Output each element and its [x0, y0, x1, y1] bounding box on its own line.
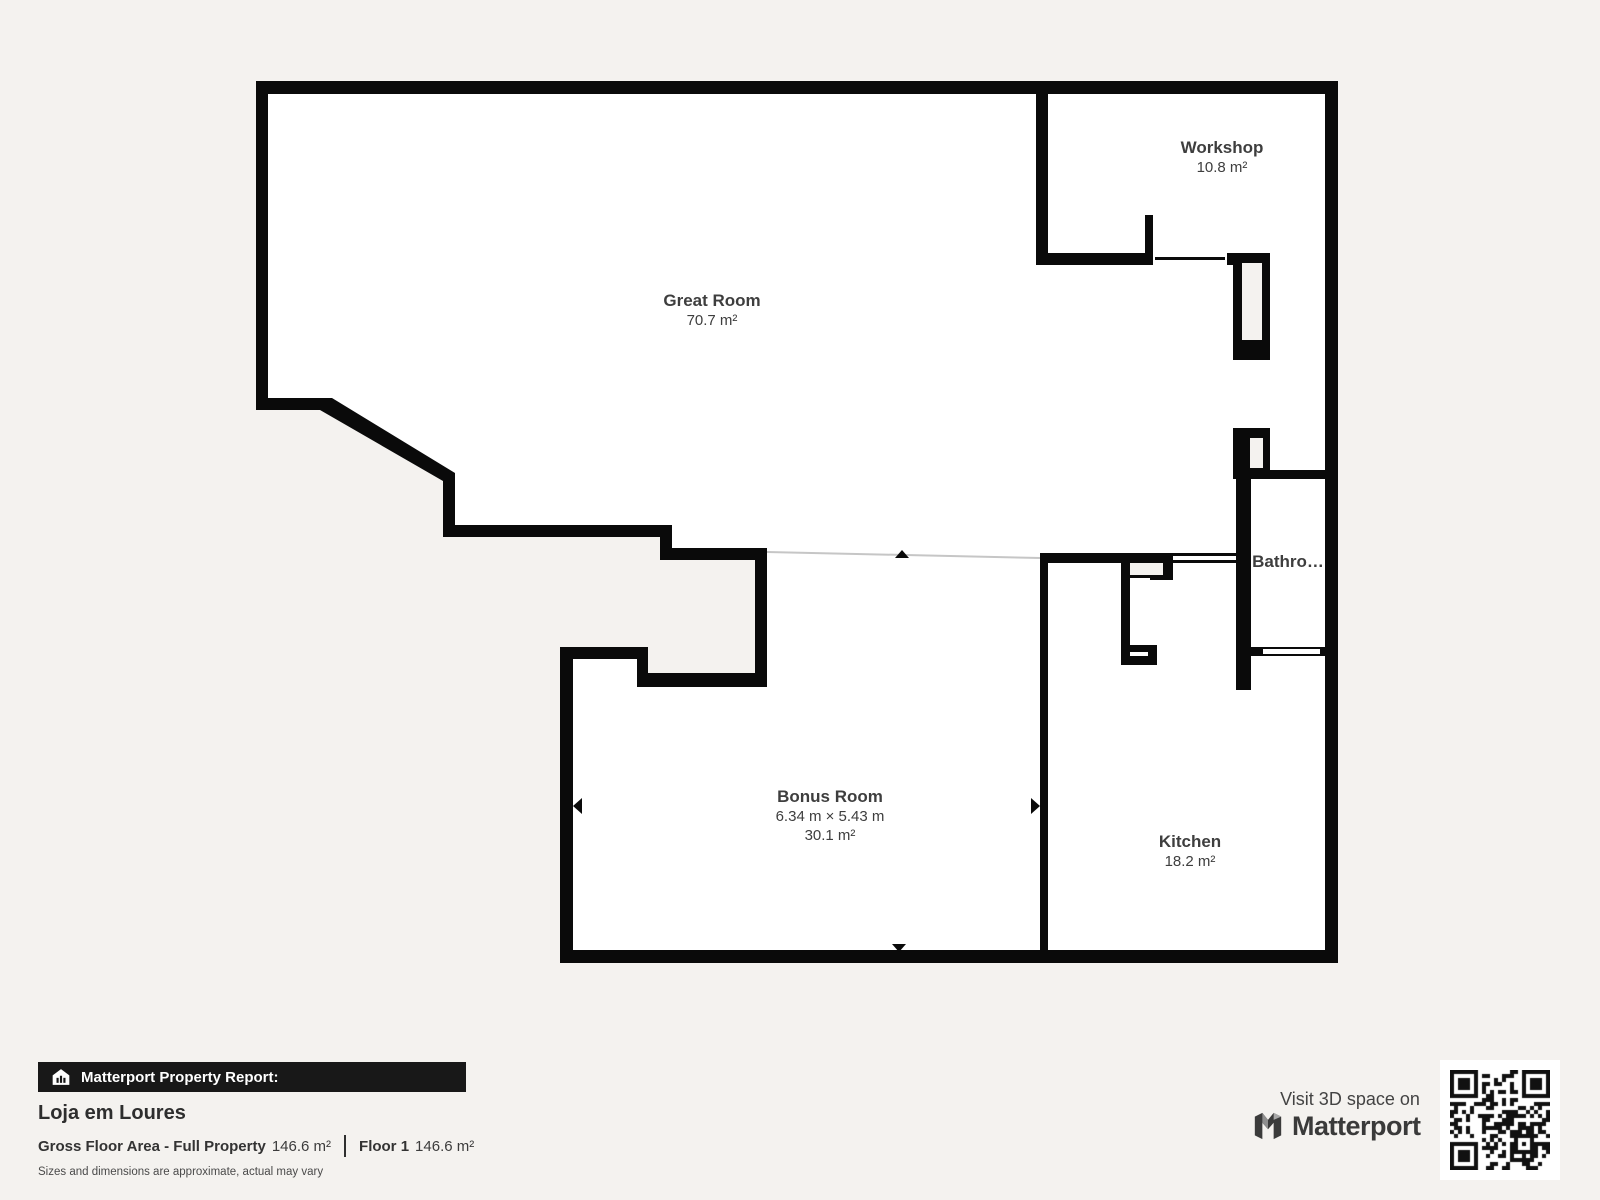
bathroom-door-slot [1263, 649, 1320, 654]
room-name: Bathro… [1252, 551, 1324, 572]
room-label-bathroom: Bathro… [1252, 551, 1324, 572]
matterport-wordmark: Matterport [1292, 1111, 1421, 1142]
room-label-great-room: Great Room 70.7 m² [663, 290, 760, 330]
workshop-bottom-wall-left [1036, 253, 1153, 265]
hall-opening-line-top [1173, 553, 1236, 556]
kitchen-niche-edge [1130, 575, 1163, 578]
visit-3d-text: Visit 3D space on [1280, 1089, 1420, 1110]
bathroom-left-wall [1236, 479, 1251, 690]
property-name: Loja em Loures [38, 1102, 186, 1125]
kitchen-niche [1130, 563, 1163, 575]
matterport-logo-icon [1252, 1110, 1284, 1142]
floor-area-stats: Gross Floor Area - Full Property 146.6 m… [38, 1135, 474, 1157]
room-label-workshop: Workshop 10.8 m² [1181, 137, 1264, 177]
bonus-kitchen-wall [1040, 553, 1048, 950]
floorplan-report-page: { "colors": { "background": "#f4f2ef", "… [0, 0, 1600, 1200]
floorplan-drawing [0, 0, 1600, 1200]
room-name: Great Room [663, 290, 760, 311]
report-title-bar: Matterport Property Report: [38, 1062, 466, 1092]
room-name: Kitchen [1159, 831, 1221, 852]
room-label-bonus-room: Bonus Room 6.34 m × 5.43 m 30.1 m² [776, 786, 885, 845]
bathroom-top-wall [1248, 470, 1330, 479]
stats-divider [344, 1135, 346, 1157]
shaft-niche-lower [1250, 438, 1263, 468]
kitchen-top-wall [1040, 553, 1173, 563]
report-bar-label: Matterport Property Report: [81, 1069, 279, 1086]
shaft-niche-upper [1242, 263, 1262, 340]
floor-label: Floor 1 [359, 1138, 409, 1155]
room-dimensions: 6.34 m × 5.43 m [776, 807, 885, 826]
kitchen-foot-notch [1130, 652, 1148, 656]
gross-floor-area-value: 146.6 m² [272, 1138, 331, 1155]
gross-floor-area-label: Gross Floor Area - Full Property [38, 1138, 266, 1155]
room-area: 18.2 m² [1159, 852, 1221, 871]
workshop-door-leaf [1155, 257, 1225, 260]
room-area: 30.1 m² [776, 826, 885, 845]
house-chart-icon [51, 1067, 71, 1087]
column-opening [1233, 360, 1270, 428]
workshop-door-stub-wall [1145, 215, 1153, 253]
matterport-brand: Matterport [1252, 1110, 1421, 1142]
disclaimer-text: Sizes and dimensions are approximate, ac… [38, 1166, 323, 1178]
floor-value: 146.6 m² [415, 1138, 474, 1155]
hall-opening-line-bottom [1173, 560, 1236, 563]
room-name: Bonus Room [776, 786, 885, 807]
workshop-left-wall [1036, 94, 1048, 253]
qr-code-pattern [1450, 1070, 1550, 1170]
qr-code [1440, 1060, 1560, 1180]
room-label-kitchen: Kitchen 18.2 m² [1159, 831, 1221, 871]
room-name: Workshop [1181, 137, 1264, 158]
room-area: 10.8 m² [1181, 158, 1264, 177]
room-area: 70.7 m² [663, 311, 760, 330]
